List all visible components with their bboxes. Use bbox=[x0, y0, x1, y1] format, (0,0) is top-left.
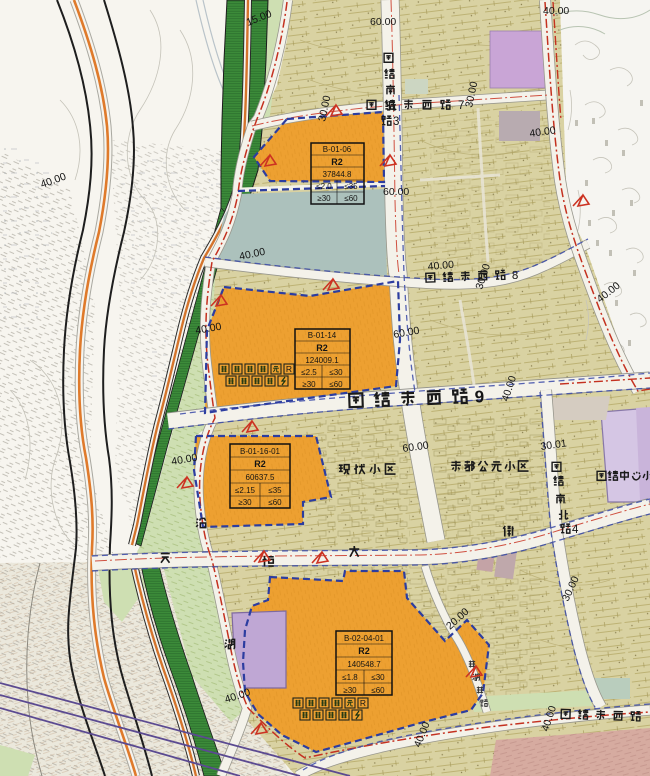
svg-text:≤60: ≤60 bbox=[344, 194, 358, 203]
svg-text:40.00: 40.00 bbox=[427, 259, 454, 273]
svg-text:4: 4 bbox=[572, 524, 579, 536]
svg-text:R: R bbox=[286, 364, 292, 374]
svg-text:≤2.0: ≤2.0 bbox=[316, 182, 332, 191]
svg-text:≤30: ≤30 bbox=[329, 368, 343, 377]
svg-text:R2: R2 bbox=[358, 646, 370, 656]
svg-text:R2: R2 bbox=[254, 459, 266, 469]
svg-text:≤60: ≤60 bbox=[371, 686, 385, 695]
svg-text:B-01-14: B-01-14 bbox=[308, 331, 337, 340]
svg-text:B-02-04-01: B-02-04-01 bbox=[344, 634, 385, 643]
svg-text:≥30: ≥30 bbox=[238, 498, 252, 507]
svg-text:60.00: 60.00 bbox=[383, 186, 409, 198]
svg-text:≤1.8: ≤1.8 bbox=[342, 673, 358, 682]
svg-text:≥30: ≥30 bbox=[317, 194, 331, 203]
svg-text:124009.1: 124009.1 bbox=[305, 356, 339, 365]
svg-text:≤35: ≤35 bbox=[268, 486, 282, 495]
svg-text:8: 8 bbox=[512, 270, 519, 282]
svg-text:R2: R2 bbox=[331, 157, 343, 167]
svg-text:9: 9 bbox=[474, 387, 484, 406]
svg-text:R: R bbox=[360, 698, 366, 708]
svg-text:37844.8: 37844.8 bbox=[323, 170, 352, 179]
svg-text:≤2.5: ≤2.5 bbox=[301, 368, 317, 377]
svg-text:B-01-06: B-01-06 bbox=[323, 145, 352, 154]
svg-text:≤30: ≤30 bbox=[371, 673, 385, 682]
svg-text:≥30: ≥30 bbox=[302, 380, 316, 389]
svg-text:≥30: ≥30 bbox=[343, 686, 357, 695]
svg-text:≤35: ≤35 bbox=[344, 182, 358, 191]
svg-text:40.00: 40.00 bbox=[543, 5, 569, 17]
svg-text:R2: R2 bbox=[316, 343, 328, 353]
svg-text:≤60: ≤60 bbox=[329, 380, 343, 389]
svg-text:60637.5: 60637.5 bbox=[246, 473, 275, 482]
svg-text:B-01-16-01: B-01-16-01 bbox=[240, 447, 281, 456]
svg-text:≤2.15: ≤2.15 bbox=[235, 486, 256, 495]
svg-text:3: 3 bbox=[393, 116, 399, 128]
svg-text:140548.7: 140548.7 bbox=[347, 660, 381, 669]
svg-text:≤60: ≤60 bbox=[268, 498, 282, 507]
svg-text:60.00: 60.00 bbox=[370, 16, 396, 28]
